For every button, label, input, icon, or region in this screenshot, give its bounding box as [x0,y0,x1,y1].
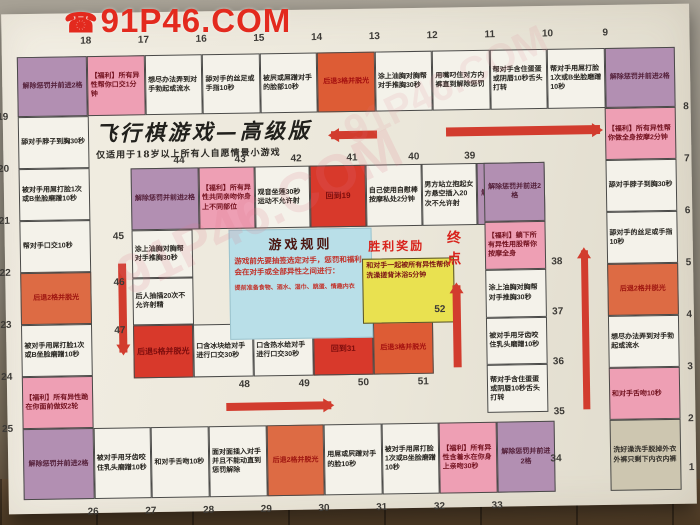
track-number-20: 20 [0,164,9,175]
track-number-6: 6 [685,205,691,216]
board-cell-23: 被对手用屌打脸1次或B坐脸磨蹭10秒 [21,324,93,377]
outer-ring-right: 【福利】所有异性帮你做全身按摩2分钟舔对手脖子到胸30秒舔对手的丝足或手指10秒… [604,107,680,420]
board-cell-46: 后人抽插20次不允许射精 [132,277,194,326]
track-number-52: 52 [434,304,445,315]
board-cell-3: 想尽办法弄到对手勃起或流水 [608,315,680,368]
board-cell-7: 【福利】所有异性帮你做全身按摩2分钟 [604,107,676,160]
track-number-39: 39 [464,151,475,162]
board-cell-51: 后退3格并脱光 [373,321,434,375]
board-cell-26: 被对手用牙齿咬住乳头磨蹭10秒 [93,427,152,499]
board-cell-42: 观音坐莲30秒运动不允许射 [254,166,311,229]
board-cell: 解除惩罚并前进2格 [484,162,546,222]
track-number-19: 19 [0,112,8,123]
board-cell-5: 舔对手的丝足或手指10秒 [606,211,678,264]
board-cell-35: 帮对手含住蛋蛋或阴唇10秒舌头打转 [487,364,549,413]
board-cell-9: 帮对手用屌打脸1次或B坐脸磨蹭10秒 [547,48,605,109]
board-cell-40: 自己使用自慰棒按摩私处2分钟 [365,164,422,227]
board-cell-8: 解除惩罚并前进2格 [604,47,675,108]
board-cell [554,420,611,492]
board-cell-17: 【福利】所有异性帮你口交1分钟 [87,55,145,116]
board-cell-13: 后退3格并脱光 [317,52,375,113]
arrowhead-left-icon [320,128,338,142]
track-number-38: 38 [551,256,562,267]
board-cell-22: 后退2格并脱光 [20,272,92,325]
track-number-7: 7 [684,153,690,164]
track-number-46: 46 [113,277,124,288]
track-number-45: 45 [113,231,124,242]
board-cell-27: 和对手舌吻10秒 [151,426,210,498]
arrowhead-right-icon [592,122,610,136]
board-cell-37: 涂上油胸对胸帮对手推胸30秒 [485,269,547,318]
photo-of-game-board: { "watermark": {"text": "91P46.COM", "ph… [0,0,700,525]
track-number-2: 2 [688,413,694,424]
arrowhead-down-icon [116,344,130,362]
track-number-12: 12 [426,30,437,41]
red-watermark: ☎91P46.COM [64,2,291,40]
track-number-31: 31 [376,502,387,513]
track-number-3: 3 [687,361,693,372]
board-cell-2: 和对手舌吻10秒 [609,367,681,420]
board-cell-6: 舔对手脖子到胸30秒 [605,159,677,212]
board-cell-19: 舔对手脖子到胸30秒 [18,116,90,169]
finish-label: 终点 [442,227,466,269]
board-cell-11: 用嘴叼住对方内裤直到解除惩罚 [432,50,490,111]
outer-ring-bottom: 解除惩罚并前进2格被对手用牙齿咬住乳头磨蹭10秒和对手舌吻10秒面对面插入对手并… [23,419,682,500]
track-number-50: 50 [358,378,369,389]
track-number-11: 11 [484,29,495,40]
track-number-49: 49 [299,378,310,389]
arrowhead-up-icon [577,240,591,258]
phone-icon: ☎ [64,8,99,38]
board-cell-28: 面对面插入对手并且不能动直到惩罚解除 [209,425,268,497]
board-cell-41: 回到19 [310,165,367,228]
board-cell-16: 想尽办法弄到对手勃起或流水 [145,54,203,115]
board-cell-20: 被对手用屌打脸1次或B坐脸磨蹭10秒 [19,168,91,221]
board-cell-24: 【福利】所有异性跪在你面前做奴2轮 [22,376,94,429]
track-number-51: 51 [418,377,429,388]
track-number-35: 35 [554,406,565,417]
board-cell-14: 被屄或屌蹭对手的脸部10秒 [260,52,318,113]
board-cell-25: 解除惩罚并前进2格 [23,428,95,500]
board-cell-39: 男方站立抱起女方悬空插入20次不允许射 [421,163,478,226]
board-cell-21: 帮对手口交10秒 [19,220,91,273]
board-cell-43: 【福利】所有异性共同亲吻你身上不同部位 [199,166,256,229]
track-number-43: 43 [235,154,246,165]
track-number-27: 27 [145,506,156,517]
board-cell-29: 后退2格并脱光 [266,425,325,497]
track-number-28: 28 [203,505,214,516]
track-number-13: 13 [369,31,380,42]
board-cell-1: 洗好澡洗手脱掉外衣外裤只剩下内衣内裤 [610,419,682,491]
outer-ring-left: 舔对手脖子到胸30秒被对手用屌打脸1次或B坐脸磨蹭10秒帮对手口交10秒后退2格… [18,116,94,429]
game-board-paper: 解除惩罚并前进2格【福利】所有异性帮你口交1分钟想尽办法弄到对手勃起或流水舔对手… [1,4,697,515]
board-cell-10: 帮对手含住蛋蛋或阴唇10秒舌头打转 [489,49,547,110]
track-number-8: 8 [683,101,689,112]
board-cell-31: 被对手用屌打脸1次或B坐脸磨蹭10秒 [381,423,440,495]
track-number-10: 10 [542,28,553,39]
track-number-32: 32 [434,501,445,512]
up-arrow [580,250,590,410]
track-number-21: 21 [0,216,10,227]
track-number-29: 29 [261,504,272,515]
board-cell-32: 【福利】所有异性含着水在你身上亲吻30秒 [439,422,498,494]
watermark-text: 91P46.COM [101,2,292,39]
track-number-44: 44 [173,155,184,166]
board-cell-4: 后退2格并脱光 [607,263,679,316]
track-number-36: 36 [553,356,564,367]
track-number-26: 26 [87,507,98,518]
track-number-14: 14 [311,32,322,43]
game-board: 解除惩罚并前进2格【福利】所有异性帮你口交1分钟想尽办法弄到对手勃起或流水舔对手… [17,47,682,500]
board-cell-38: 【福利】躺下所有异性用股帮你按摩全身 [485,221,547,270]
right-arrow [226,401,331,411]
victory-reward-title: 胜利奖励 [350,237,442,255]
arrowhead-up-icon [449,275,463,293]
track-number-30: 30 [318,503,329,514]
left-arrow [331,130,377,139]
outer-ring-top: 解除惩罚并前进2格【福利】所有异性帮你口交1分钟想尽办法弄到对手勃起或流水舔对手… [17,47,676,117]
track-number-23: 23 [0,320,11,331]
arrowhead-right-icon [323,398,341,412]
board-cell-44: 解除惩罚并前进2格 [130,167,199,230]
title-band: 飞行棋游戏—高级版 仅适用于18岁以上所有人自愿情景小游戏 [95,113,405,169]
track-number-34: 34 [550,453,561,464]
track-number-48: 48 [239,379,250,390]
track-number-33: 33 [492,500,503,511]
track-number-1: 1 [689,462,695,473]
rules-body: 游戏前先要抽签选定对手，惩罚和福利会在对手或全部异性之间进行： [234,255,367,279]
track-number-37: 37 [552,306,563,317]
track-number-24: 24 [1,372,12,383]
finish-up-arrow [453,285,462,367]
inner-ring-right: 解除惩罚并前进2格【福利】躺下所有异性用股帮你按摩全身涂上油胸对胸帮对手推胸30… [484,162,549,413]
track-number-41: 41 [346,153,357,164]
board-cell-36: 被对手用牙齿咬住乳头磨蹭10秒 [486,316,548,365]
board-cell-47: 后退5格并脱光 [133,325,194,379]
track-number-47: 47 [114,325,125,336]
board-cell-30: 用屌或屄蹭对手的脸10秒 [324,424,383,496]
rules-note: 提前准备食物、酒水、湿巾、跳蛋、情趣内衣 [235,281,368,292]
track-number-40: 40 [408,152,419,163]
track-number-9: 9 [602,27,608,38]
board-cell-15: 舔对手的丝足或手指10秒 [202,53,260,114]
board-cell-12: 涂上油胸对胸帮对手推胸30秒 [374,51,432,112]
board-cell-33: 解除惩罚并前进2格 [497,421,556,493]
board-cell-45: 涂上油胸对胸帮对手推胸30秒 [131,229,193,278]
track-number-42: 42 [290,154,301,165]
track-number-25: 25 [2,424,13,435]
track-number-22: 22 [0,268,11,279]
top-right-arrow [446,125,601,136]
board-cell-18: 解除惩罚并前进2格 [17,56,88,117]
inner-ring-left: 涂上油胸对胸帮对手推胸30秒后人抽插20次不允许射精 [131,229,194,325]
track-number-4: 4 [686,309,692,320]
track-number-5: 5 [686,257,692,268]
rules-title: 游戏规则 [234,233,367,254]
